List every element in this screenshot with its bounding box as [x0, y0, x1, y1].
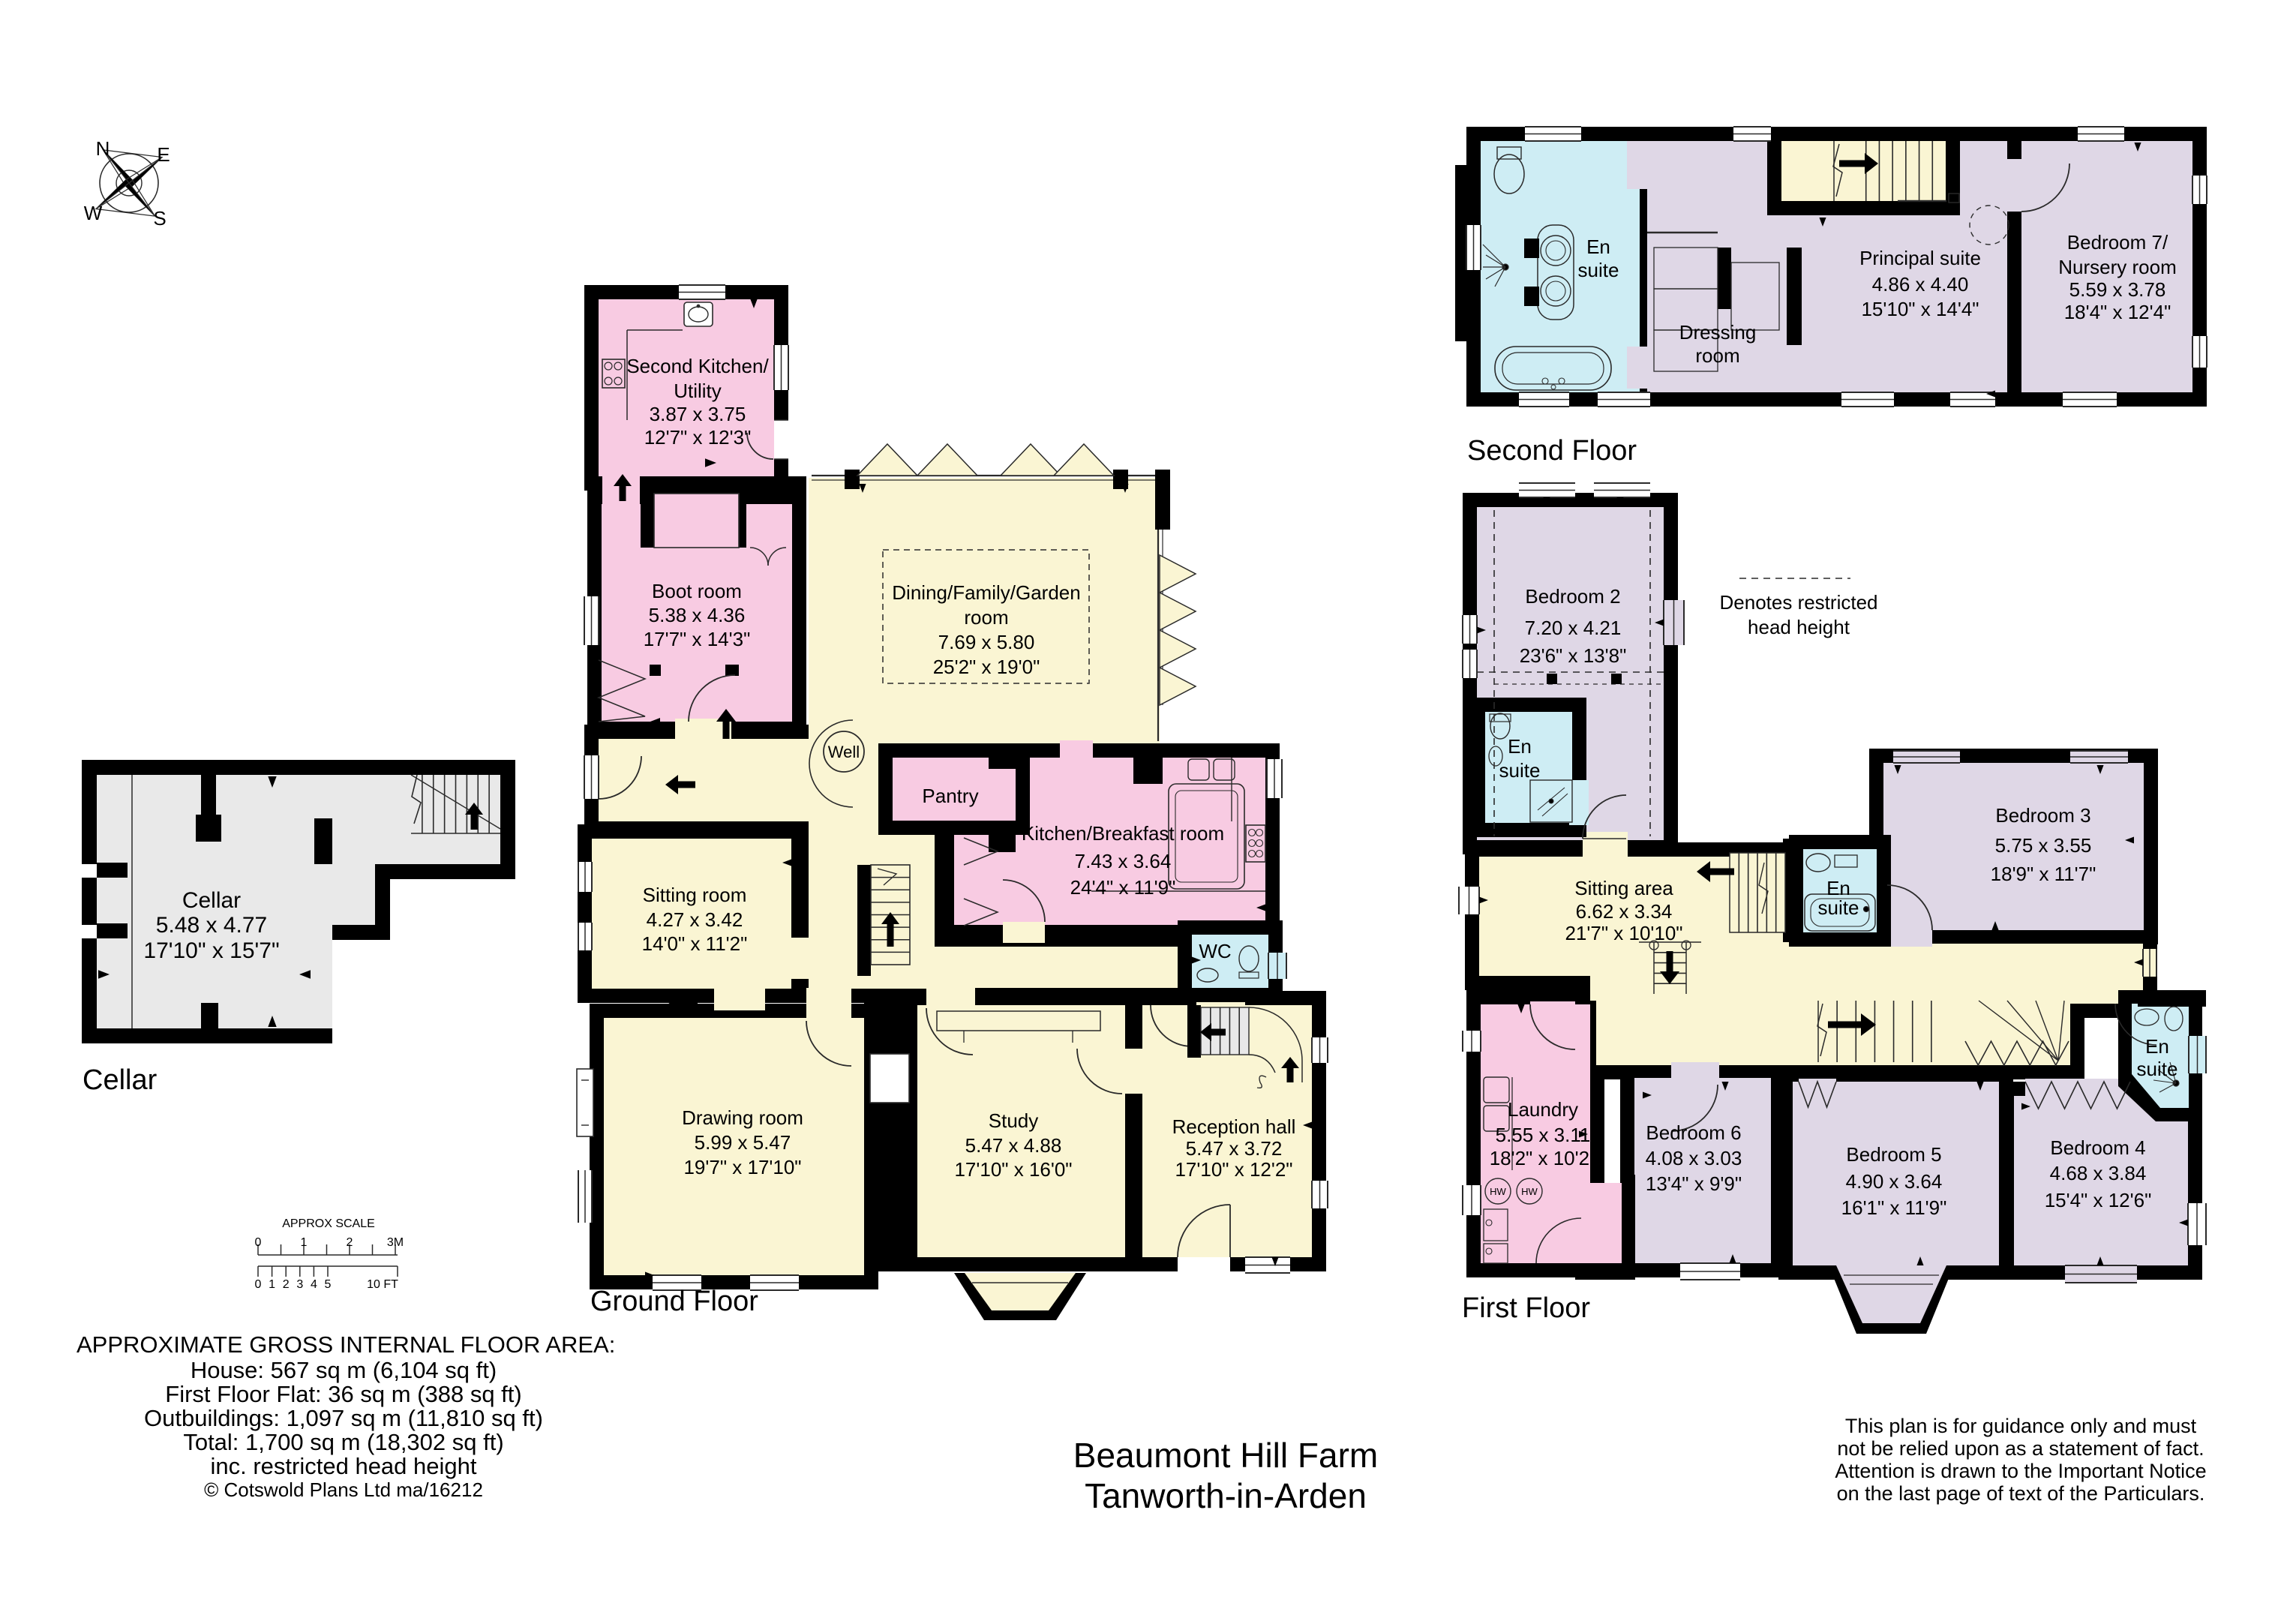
svg-text:Utility: Utility — [674, 380, 722, 402]
svg-text:17'10" x 12'2": 17'10" x 12'2" — [1175, 1158, 1292, 1181]
svg-text:suite: suite — [1499, 759, 1541, 782]
svg-text:Sitting room: Sitting room — [643, 884, 747, 906]
svg-text:Nursery room: Nursery room — [2058, 256, 2176, 278]
svg-text:3: 3 — [296, 1278, 303, 1291]
svg-text:7.20 x 4.21: 7.20 x 4.21 — [1525, 617, 1622, 639]
svg-text:25'2" x 19'0": 25'2" x 19'0" — [933, 656, 1040, 678]
svg-text:Bedroom 7/: Bedroom 7/ — [2067, 231, 2168, 254]
svg-text:Cellar: Cellar — [83, 1064, 158, 1096]
svg-text:5.38 x 4.36: 5.38 x 4.36 — [649, 604, 746, 626]
svg-text:Sitting area: Sitting area — [1574, 877, 1673, 899]
svg-text:Boot room: Boot room — [652, 580, 742, 602]
svg-text:Tanworth-in-Arden: Tanworth-in-Arden — [1085, 1476, 1367, 1515]
svg-text:4.68 x 3.84: 4.68 x 3.84 — [2050, 1162, 2147, 1184]
svg-text:3.87 x 3.75: 3.87 x 3.75 — [650, 403, 746, 425]
svg-text:Kitchen/Breakfast room: Kitchen/Breakfast room — [1022, 822, 1224, 845]
svg-text:Drawing room: Drawing room — [682, 1106, 803, 1129]
svg-text:5.55 x 3.11: 5.55 x 3.11 — [1496, 1124, 1591, 1146]
svg-text:room: room — [1695, 344, 1739, 367]
svg-text:18'4" x 12'4": 18'4" x 12'4" — [2064, 301, 2171, 323]
svg-text:Bedroom 3: Bedroom 3 — [1995, 804, 2090, 827]
svg-text:head height: head height — [1748, 616, 1850, 638]
svg-text:19'7" x 17'10": 19'7" x 17'10" — [683, 1156, 801, 1178]
svg-text:0: 0 — [255, 1236, 262, 1249]
svg-text:En: En — [1586, 236, 1610, 258]
svg-text:Beaumont Hill Farm: Beaumont Hill Farm — [1073, 1436, 1378, 1475]
svg-text:WC: WC — [1199, 940, 1231, 962]
svg-text:1: 1 — [269, 1278, 275, 1291]
svg-text:Denotes restricted: Denotes restricted — [1720, 591, 1878, 614]
svg-text:4.90 x 3.64: 4.90 x 3.64 — [1846, 1170, 1943, 1193]
svg-text:5.47 x 4.88: 5.47 x 4.88 — [965, 1134, 1062, 1157]
svg-text:HW: HW — [1490, 1186, 1506, 1197]
svg-text:APPROXIMATE GROSS INTERNAL FLO: APPROXIMATE GROSS INTERNAL FLOOR AREA: — [77, 1331, 615, 1358]
svg-text:Reception hall: Reception hall — [1172, 1115, 1296, 1138]
svg-text:4.86 x 4.40: 4.86 x 4.40 — [1872, 273, 1969, 296]
svg-text:Dining/Family/Garden: Dining/Family/Garden — [892, 581, 1080, 604]
svg-text:Outbuildings: 1,097 sq m (11,8: Outbuildings: 1,097 sq m (11,810 sq ft) — [144, 1405, 543, 1431]
svg-text:5.47 x 3.72: 5.47 x 3.72 — [1186, 1137, 1283, 1160]
svg-text:1: 1 — [301, 1236, 308, 1249]
svg-text:Ground Floor: Ground Floor — [590, 1286, 758, 1317]
svg-text:Bedroom 4: Bedroom 4 — [2050, 1136, 2145, 1159]
svg-text:17'10" x 15'7": 17'10" x 15'7" — [143, 938, 279, 963]
svg-text:4.27 x 3.42: 4.27 x 3.42 — [647, 908, 743, 931]
svg-text:4: 4 — [311, 1278, 317, 1291]
svg-text:on the last page of text of th: on the last page of text of the Particul… — [1837, 1482, 2205, 1505]
svg-text:15'4" x 12'6": 15'4" x 12'6" — [2045, 1189, 2152, 1211]
svg-text:inc. restricted head height: inc. restricted head height — [211, 1453, 477, 1479]
svg-text:5.99 x 5.47: 5.99 x 5.47 — [695, 1131, 791, 1154]
svg-text:HW: HW — [1521, 1186, 1538, 1197]
svg-text:7.69 x 5.80: 7.69 x 5.80 — [938, 631, 1035, 653]
svg-text:S: S — [153, 207, 166, 230]
svg-text:Second Kitchen/: Second Kitchen/ — [626, 355, 769, 377]
svg-text:This plan is for guidance only: This plan is for guidance only and must — [1845, 1415, 2197, 1437]
svg-text:2: 2 — [347, 1236, 353, 1249]
svg-text:N: N — [96, 137, 110, 160]
svg-text:E: E — [157, 143, 170, 166]
svg-text:5.48 x 4.77: 5.48 x 4.77 — [156, 913, 267, 938]
svg-text:suite: suite — [1818, 896, 1859, 919]
svg-text:10 FT: 10 FT — [367, 1278, 398, 1291]
svg-text:Study: Study — [989, 1109, 1039, 1132]
svg-text:© Cotswold Plans Ltd ma/16212: © Cotswold Plans Ltd ma/16212 — [204, 1478, 483, 1501]
svg-text:Dressing: Dressing — [1679, 321, 1757, 344]
svg-text:Total: 1,700 sq m (18,302 sq f: Total: 1,700 sq m (18,302 sq ft) — [183, 1429, 503, 1455]
svg-text:18'9" x 11'7": 18'9" x 11'7" — [1991, 863, 2096, 885]
svg-text:Bedroom 6: Bedroom 6 — [1646, 1121, 1741, 1144]
svg-text:2: 2 — [283, 1278, 290, 1291]
svg-text:17'10" x 16'0": 17'10" x 16'0" — [954, 1158, 1072, 1181]
svg-text:First Floor Flat: 36 sq m (388: First Floor Flat: 36 sq m (388 sq ft) — [165, 1381, 521, 1407]
svg-text:En: En — [1508, 735, 1532, 758]
svg-text:Well: Well — [828, 743, 860, 761]
svg-text:17'7" x 14'3": 17'7" x 14'3" — [644, 628, 751, 650]
svg-text:room: room — [964, 606, 1008, 629]
svg-text:Second Floor: Second Floor — [1467, 435, 1637, 467]
svg-text:Principal suite: Principal suite — [1859, 247, 1981, 269]
svg-text:0: 0 — [255, 1278, 262, 1291]
svg-text:Bedroom 5: Bedroom 5 — [1846, 1143, 1941, 1166]
svg-text:13'4" x 9'9": 13'4" x 9'9" — [1646, 1172, 1742, 1195]
svg-text:4.08 x 3.03: 4.08 x 3.03 — [1646, 1147, 1742, 1169]
svg-text:suite: suite — [1578, 259, 1619, 281]
svg-text:5.59 x 3.78: 5.59 x 3.78 — [2069, 278, 2166, 301]
svg-text:W: W — [84, 202, 103, 224]
svg-text:House: 567 sq m (6,104 sq ft): House: 567 sq m (6,104 sq ft) — [191, 1357, 497, 1383]
svg-text:First Floor: First Floor — [1462, 1292, 1590, 1324]
svg-text:En: En — [2145, 1035, 2169, 1058]
svg-text:12'7" x 12'3": 12'7" x 12'3" — [644, 426, 752, 449]
svg-text:Attention is drawn to the Impo: Attention is drawn to the Important Noti… — [1835, 1460, 2206, 1482]
svg-text:5.75 x 3.55: 5.75 x 3.55 — [1995, 834, 2092, 857]
svg-text:Bedroom 2: Bedroom 2 — [1525, 585, 1620, 608]
svg-text:24'4" x 11'9": 24'4" x 11'9" — [1070, 876, 1176, 899]
svg-text:Cellar: Cellar — [182, 888, 241, 913]
svg-text:APPROX SCALE: APPROX SCALE — [282, 1217, 375, 1230]
svg-text:7.43 x 3.64: 7.43 x 3.64 — [1075, 850, 1172, 872]
svg-text:not be relied upon as a statem: not be relied upon as a statement of fac… — [1837, 1437, 2204, 1460]
svg-text:18'2" x 10'2": 18'2" x 10'2" — [1490, 1147, 1597, 1169]
svg-text:21'7" x 10'10": 21'7" x 10'10" — [1565, 922, 1682, 944]
svg-text:suite: suite — [2137, 1058, 2178, 1080]
svg-text:Pantry: Pantry — [922, 785, 978, 807]
svg-text:Laundry: Laundry — [1508, 1098, 1578, 1121]
svg-text:5: 5 — [325, 1278, 332, 1291]
svg-text:23'6" x 13'8": 23'6" x 13'8" — [1520, 644, 1627, 667]
svg-text:14'0" x 11'2": 14'0" x 11'2" — [642, 932, 748, 955]
svg-text:15'10" x 14'4": 15'10" x 14'4" — [1861, 298, 1979, 320]
svg-text:16'1" x 11'9": 16'1" x 11'9" — [1841, 1196, 1947, 1219]
svg-text:6.62 x 3.34: 6.62 x 3.34 — [1576, 900, 1673, 923]
svg-text:3M: 3M — [387, 1236, 404, 1249]
